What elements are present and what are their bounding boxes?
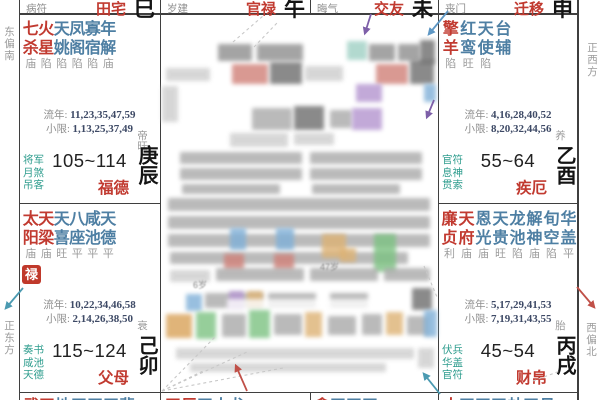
censored-block xyxy=(410,60,434,84)
censored-block xyxy=(310,168,422,180)
censored-block xyxy=(347,41,367,60)
star-column: 天贵旺 xyxy=(492,210,509,261)
censored-block xyxy=(294,133,334,145)
ziwei-chart-page: 6岁47岁 东偏南 正东方 正西方 西偏北 病符 田宅 巳 岁建 官禄 午 晦气… xyxy=(0,0,600,400)
hua-lu-badge: 禄 xyxy=(22,265,41,284)
censored-block xyxy=(412,288,432,310)
censored-block xyxy=(166,68,210,81)
censored-block xyxy=(330,110,352,128)
star-list: 廉贞利天府庙恩光庙天贵旺龙池陷解神庙旬空陷华盖平 xyxy=(441,210,577,261)
star-column: 龙池陷 xyxy=(509,210,526,261)
star-column: 天府庙 xyxy=(458,210,475,261)
censored-block xyxy=(216,268,304,281)
censored-block xyxy=(276,228,294,250)
palace-hai-stars: 太天天天劫天月 xyxy=(443,392,555,400)
censored-block xyxy=(328,316,356,335)
censored-block xyxy=(232,64,268,84)
censored-block xyxy=(230,228,246,250)
censored-block xyxy=(398,44,420,61)
star-list: 太阳庙天梁庙天喜旺八座平咸池平天德平 xyxy=(23,210,116,261)
palace-ganzhi: 乙酉 xyxy=(552,145,575,185)
censored-block xyxy=(294,106,324,130)
star-column: 寡宿陷 xyxy=(85,20,101,71)
star-column: 火星陷 xyxy=(39,20,55,71)
censored-block xyxy=(180,152,302,164)
censored-block xyxy=(362,314,382,335)
censored-block xyxy=(186,294,202,311)
censored-block xyxy=(310,152,422,164)
censored-block xyxy=(166,314,192,338)
star-column: 旬空陷 xyxy=(543,210,560,261)
star-column: 擎羊陷 xyxy=(442,20,460,71)
censored-block xyxy=(176,348,414,359)
star-column: 太阳庙 xyxy=(23,210,39,261)
censored-block xyxy=(352,108,382,130)
censored-block xyxy=(305,312,322,337)
censored-block xyxy=(305,66,343,81)
liunian-ages: 流年: 10,22,34,46,58 xyxy=(19,297,160,312)
censored-block xyxy=(257,44,303,61)
censored-block xyxy=(376,64,408,84)
palace-you: 擎羊陷红鸾旺天使陷台辅 流年: 4,16,28,40,52 小限: 8,20,3… xyxy=(438,14,578,203)
palace-ganzhi: 庚辰 xyxy=(134,145,157,185)
censored-block xyxy=(424,84,436,102)
star-column: 解神庙 xyxy=(526,210,543,261)
star-column: 咸池平 xyxy=(85,210,101,261)
palace-name: 财帛 xyxy=(516,366,547,388)
liunian-ages: 流年: 5,17,29,41,53 xyxy=(438,297,578,312)
star-column: 华盖平 xyxy=(560,210,577,261)
censored-block xyxy=(218,44,252,61)
censored-block xyxy=(356,84,382,102)
palace-ganzhi: 己卯 xyxy=(134,335,157,375)
censored-block xyxy=(162,86,178,122)
censored-block xyxy=(230,133,288,147)
palace-xu: 廉贞利天府庙恩光庙天贵旺龙池陷解神庙旬空陷华盖平 流年: 5,17,29,41,… xyxy=(438,204,578,392)
star-column: 恩光庙 xyxy=(475,210,492,261)
star-column: 七杀庙 xyxy=(23,20,39,71)
star-column: 廉贞利 xyxy=(441,210,458,261)
palace-name: 父母 xyxy=(98,366,129,388)
star-column: 天喜旺 xyxy=(54,210,70,261)
palace-mao: 太阳庙天梁庙天喜旺八座平咸池平天德平 禄 流年: 10,22,34,46,58 … xyxy=(19,204,160,392)
star-list: 擎羊陷红鸾旺天使陷台辅 xyxy=(442,20,512,71)
censored-block xyxy=(424,310,437,337)
palace-chou-stars: 天巨天大龙 xyxy=(165,392,245,400)
star-column: 天姚陷 xyxy=(54,20,70,71)
censored-block xyxy=(369,44,395,61)
palace-yin-stars: 武天地天天天蜚 xyxy=(23,392,135,400)
palace-zi-stars: 贪天天天 xyxy=(314,392,378,400)
censored-block xyxy=(190,363,386,372)
palace-chen: 七杀庙火星陷天姚陷凤阁陷寡宿陷年解庙 流年: 11,23,35,47,59 小限… xyxy=(19,14,160,203)
censored-block xyxy=(182,184,280,194)
palace-name: 福德 xyxy=(98,176,129,198)
censored-block xyxy=(252,108,292,130)
censored-block xyxy=(168,198,430,211)
star-column: 天使陷 xyxy=(477,20,495,71)
censored-block xyxy=(249,310,270,338)
censored-text-fragment: 47岁 xyxy=(320,260,339,273)
liunian-ages: 流年: 4,16,28,40,52 xyxy=(438,107,578,122)
censored-block xyxy=(340,248,356,262)
life-stage: 衰 xyxy=(136,320,148,331)
censored-block xyxy=(374,234,396,272)
censored-block xyxy=(274,314,302,335)
palace-name: 疾厄 xyxy=(516,176,547,198)
palace-ganzhi: 丙戌 xyxy=(552,335,575,375)
censored-block xyxy=(180,168,302,180)
star-column: 台辅 xyxy=(495,20,513,71)
censored-block xyxy=(312,184,400,194)
life-stage: 养 xyxy=(554,130,566,141)
censored-text-fragment: 6岁 xyxy=(193,278,207,291)
censored-block xyxy=(168,216,430,229)
life-stage: 胎 xyxy=(554,320,566,331)
star-column: 年解庙 xyxy=(101,20,117,71)
star-column: 天德平 xyxy=(101,210,117,261)
star-column: 八座平 xyxy=(70,210,86,261)
star-column: 凤阁陷 xyxy=(70,20,86,71)
star-column: 红鸾旺 xyxy=(460,20,478,71)
censored-block xyxy=(384,268,430,281)
censored-block xyxy=(386,312,403,335)
censored-block xyxy=(222,314,246,337)
star-list: 七杀庙火星陷天姚陷凤阁陷寡宿陷年解庙 xyxy=(23,20,116,71)
censored-block xyxy=(270,62,302,84)
star-column: 天梁庙 xyxy=(39,210,55,261)
censored-block xyxy=(418,348,434,368)
censored-block xyxy=(196,312,216,339)
liunian-ages: 流年: 11,23,35,47,59 xyxy=(19,107,160,122)
